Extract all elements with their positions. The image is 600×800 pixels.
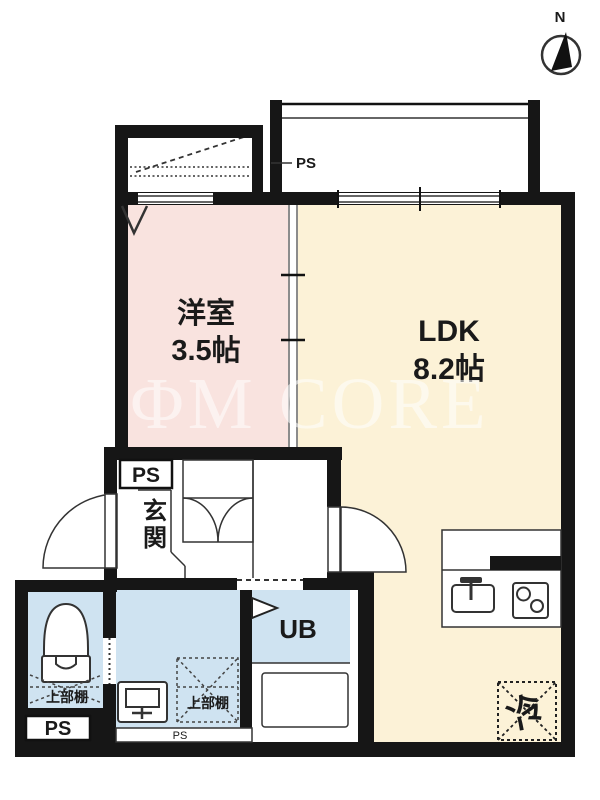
entrance-label: 玄関 <box>139 497 166 552</box>
ps-box-toilet: PS <box>26 716 90 740</box>
toilet-icon <box>42 604 90 682</box>
western-room-name: 洋室 <box>177 296 235 330</box>
unit-bath-label: UB <box>279 614 317 644</box>
toilet-shelf-label: 上部棚 <box>46 689 88 705</box>
washroom-shelf-label: 上部棚 <box>187 695 229 711</box>
stove-icon <box>513 583 548 618</box>
balcony <box>270 104 540 118</box>
ps-hall-label: PS <box>132 464 160 487</box>
bathtub-box <box>262 673 348 727</box>
compass-icon: N <box>542 9 580 74</box>
ldk-name: LDK <box>418 315 480 348</box>
storage-closet <box>130 135 250 176</box>
ps-strip-washroom: PS <box>116 728 252 742</box>
floor-plan-canvas: PS PS 玄関 <box>0 0 600 800</box>
ps-balcony-label: PS <box>296 155 316 172</box>
washroom-opening <box>237 578 303 590</box>
ps-washroom-label: PS <box>173 730 188 742</box>
kitchen-counter <box>442 530 561 627</box>
washing-machine-icon <box>118 682 167 722</box>
watermark-text: ΦM CORE <box>130 363 489 444</box>
entrance-door <box>43 494 117 568</box>
ps-box-hall: PS <box>120 460 172 488</box>
ps-toilet-label: PS <box>45 718 72 740</box>
floor-plan: PS PS 玄関 <box>0 0 600 800</box>
compass-north-label: N <box>555 9 566 26</box>
window-western-top <box>138 193 213 204</box>
